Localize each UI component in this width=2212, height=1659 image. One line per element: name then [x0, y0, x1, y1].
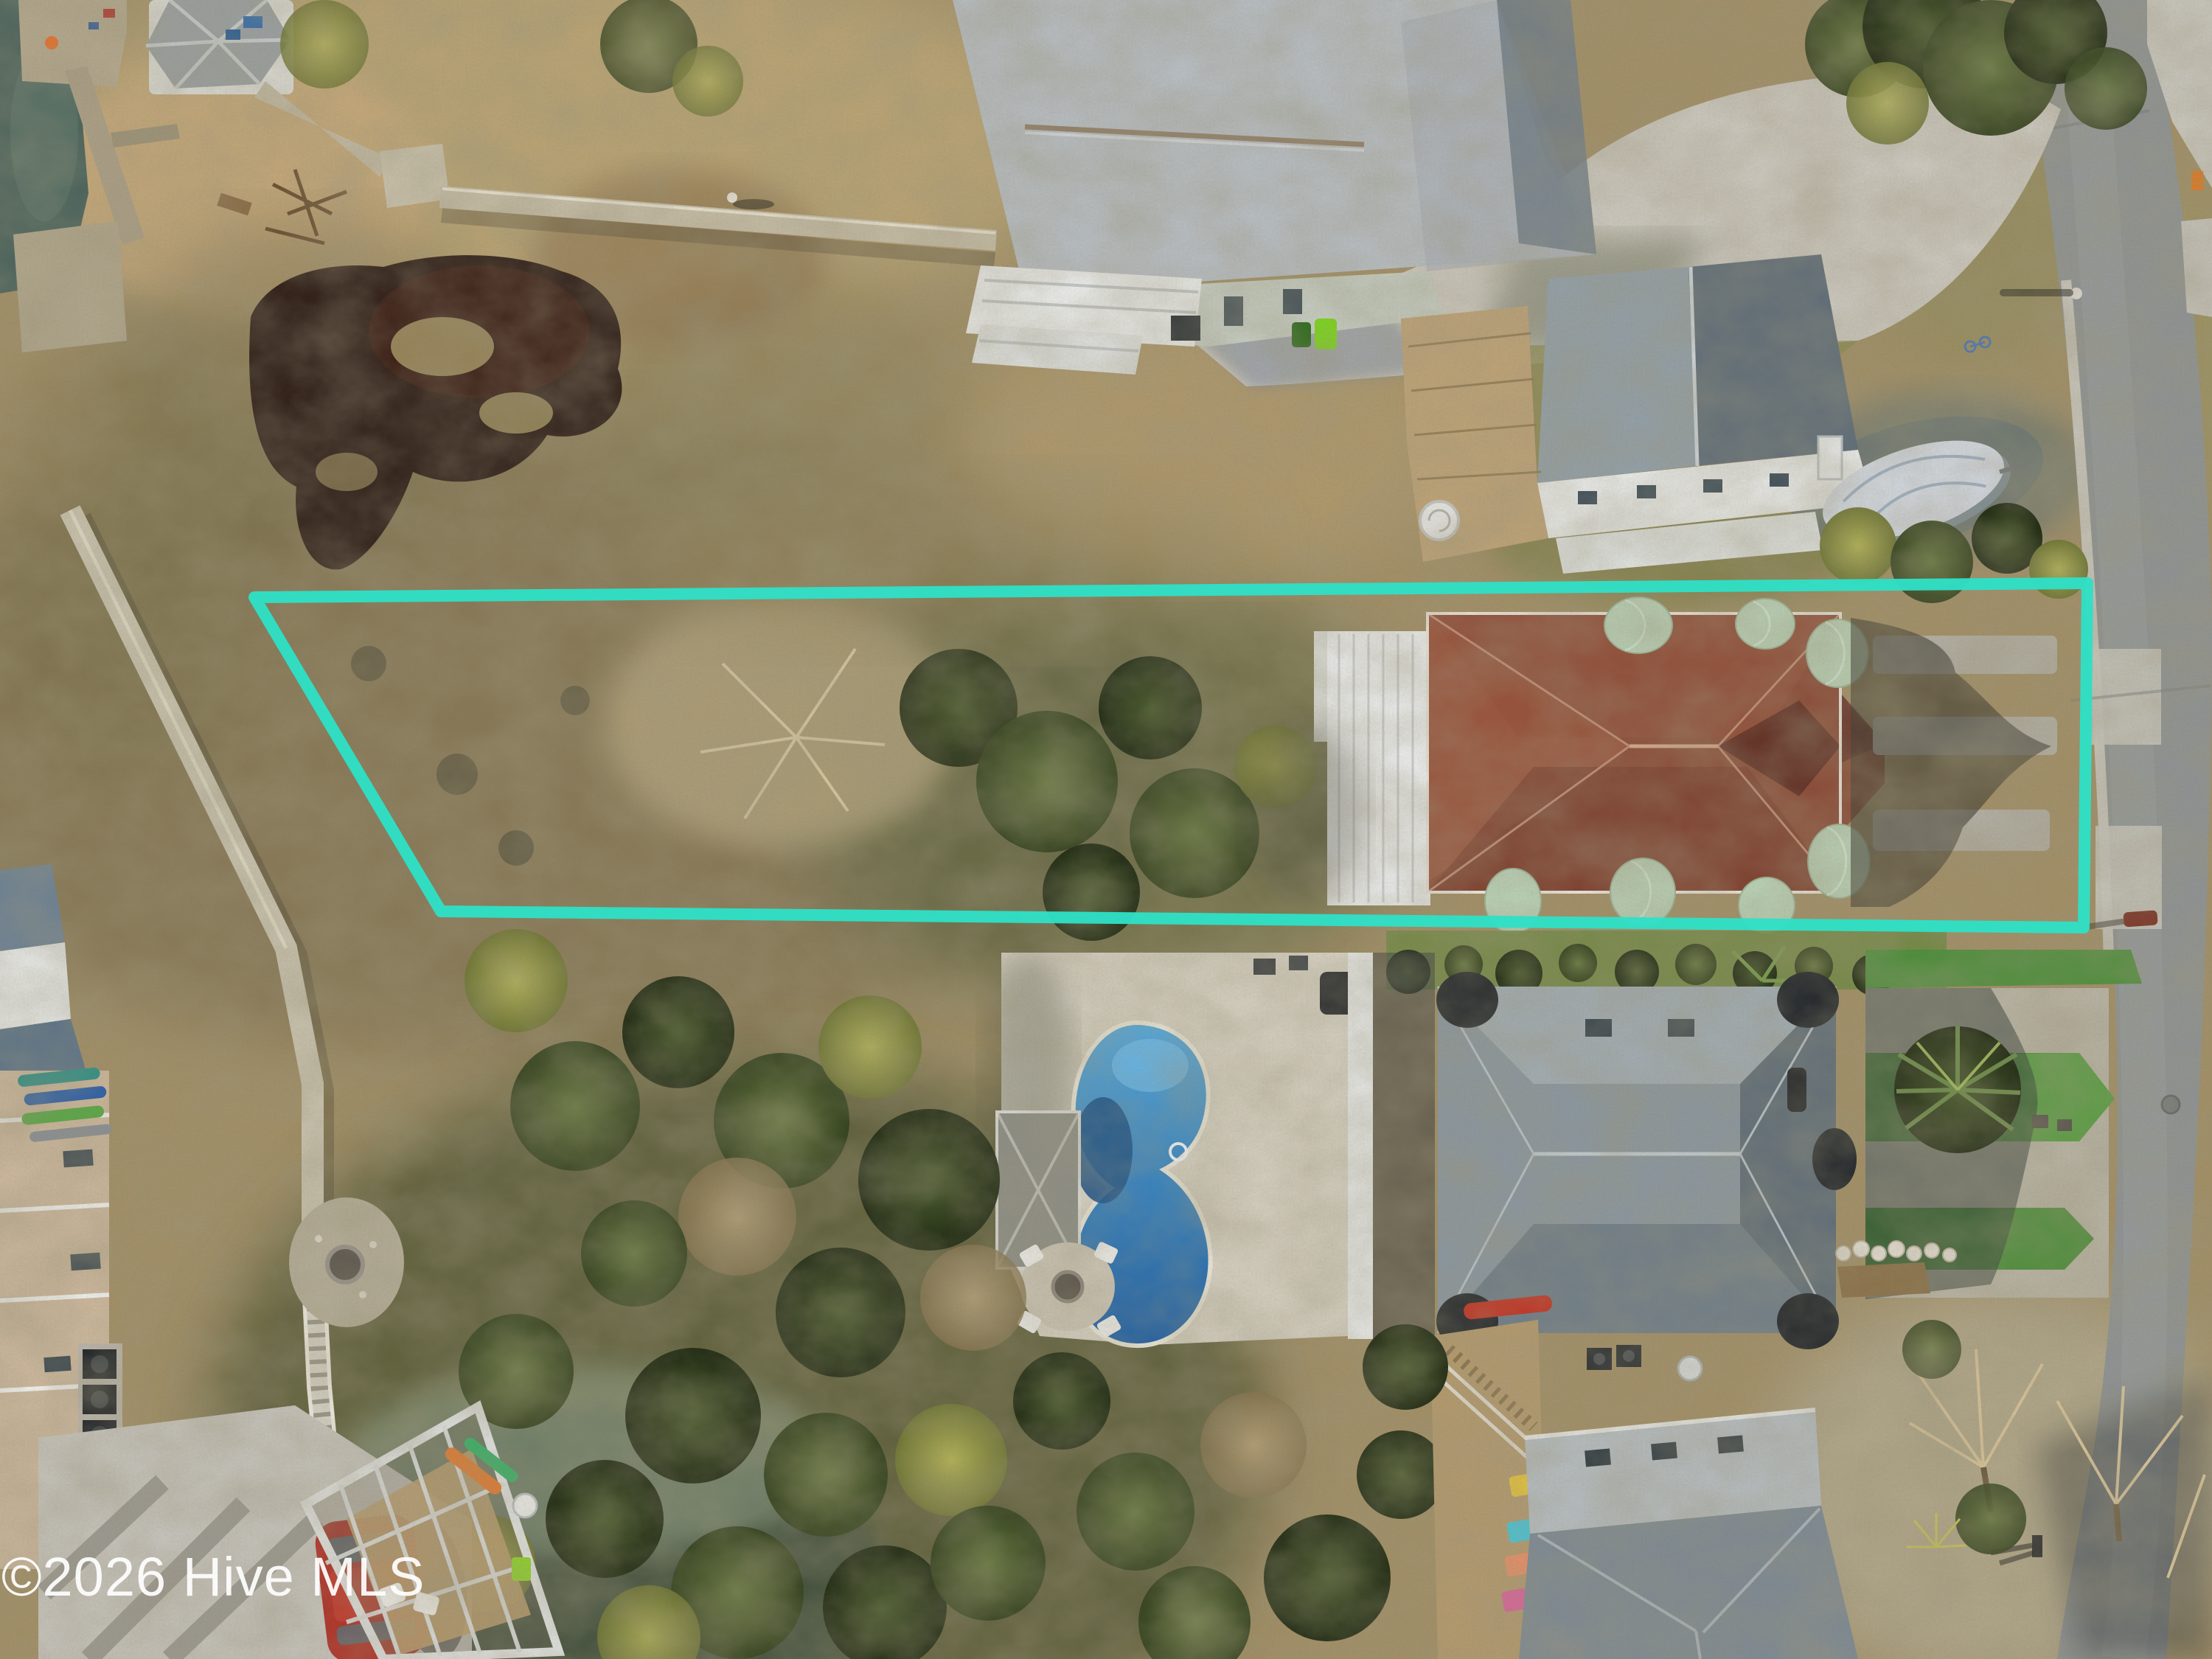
aerial-scene: [0, 0, 2212, 1659]
watermark: ©2026 Hive MLS: [1, 1550, 425, 1604]
film-grain: [0, 0, 2212, 1659]
aerial-photo: ©2026 Hive MLS: [0, 0, 2212, 1659]
